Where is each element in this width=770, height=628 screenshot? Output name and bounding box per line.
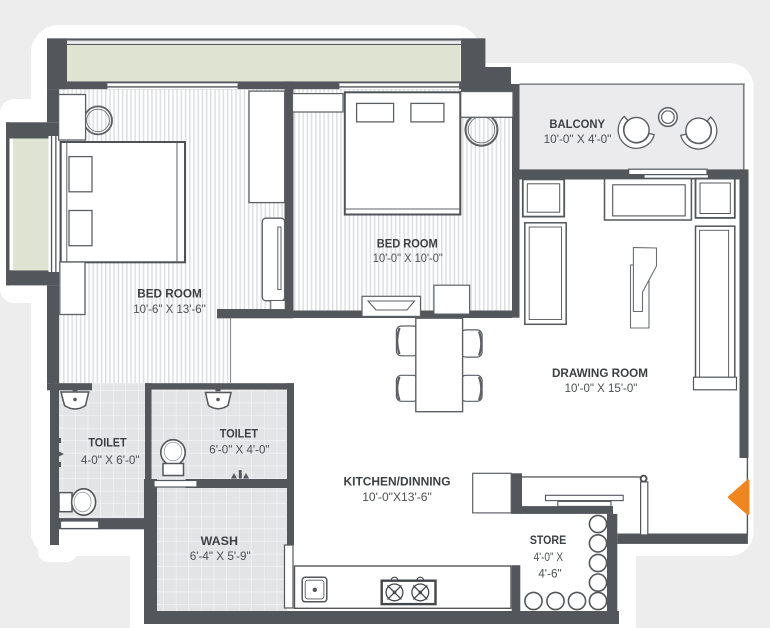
svg-text:10'-6" X 13'-6": 10'-6" X 13'-6": [133, 302, 206, 316]
svg-text:BED ROOM: BED ROOM: [137, 288, 202, 301]
svg-text:10'-0"X13'-6": 10'-0"X13'-6": [362, 490, 432, 504]
svg-text:4'-0" X: 4'-0" X: [534, 550, 564, 564]
svg-text:BED ROOM: BED ROOM: [377, 237, 438, 250]
svg-text:BALCONY: BALCONY: [549, 118, 605, 131]
svg-text:10'-0" X 4'-0": 10'-0" X 4'-0": [544, 132, 612, 146]
svg-text:6'-4" X 5'-9": 6'-4" X 5'-9": [190, 549, 251, 563]
svg-text:KITCHEN/DINNING: KITCHEN/DINNING: [344, 476, 451, 489]
svg-text:WASH: WASH: [201, 535, 238, 548]
svg-text:4-0" X 6'-0": 4-0" X 6'-0": [81, 453, 140, 467]
svg-text:4'-6": 4'-6": [538, 567, 562, 581]
svg-text:TOILET: TOILET: [220, 428, 258, 441]
svg-text:TOILET: TOILET: [88, 437, 126, 450]
svg-text:10'-0" X 15'-0": 10'-0" X 15'-0": [565, 381, 638, 395]
svg-text:10'-0" X 10'-0": 10'-0" X 10'-0": [373, 251, 443, 265]
svg-text:6'-0" X 4'-0": 6'-0" X 4'-0": [209, 442, 269, 456]
svg-text:STORE: STORE: [530, 534, 567, 547]
svg-text:DRAWING ROOM: DRAWING ROOM: [552, 367, 648, 380]
